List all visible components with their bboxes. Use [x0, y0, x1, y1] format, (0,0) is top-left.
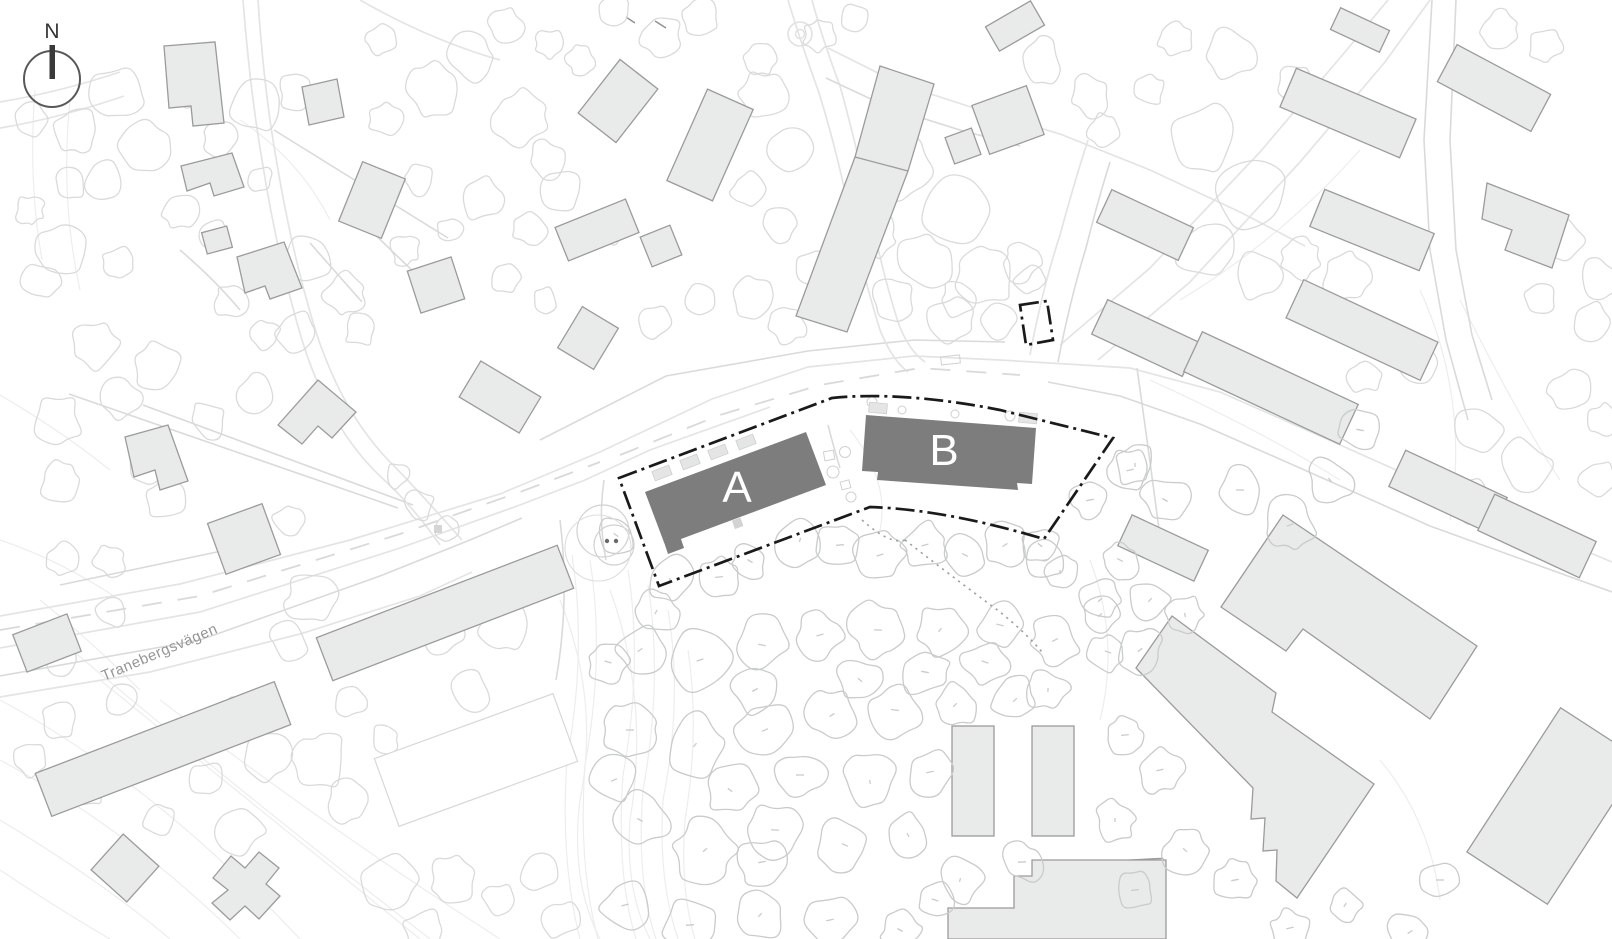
svg-text:B: B	[929, 426, 958, 475]
svg-text:A: A	[722, 463, 752, 512]
svg-text:N: N	[44, 20, 59, 43]
